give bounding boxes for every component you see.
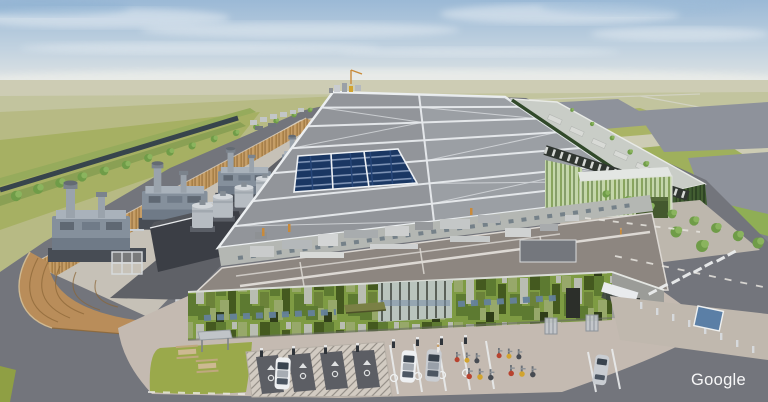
rendering-canvas: Google xyxy=(0,0,768,402)
glass-colonnade xyxy=(378,280,452,322)
office-door xyxy=(566,288,580,318)
ev-parking xyxy=(246,342,392,397)
google-watermark: Google xyxy=(691,371,746,390)
sky xyxy=(0,0,768,92)
